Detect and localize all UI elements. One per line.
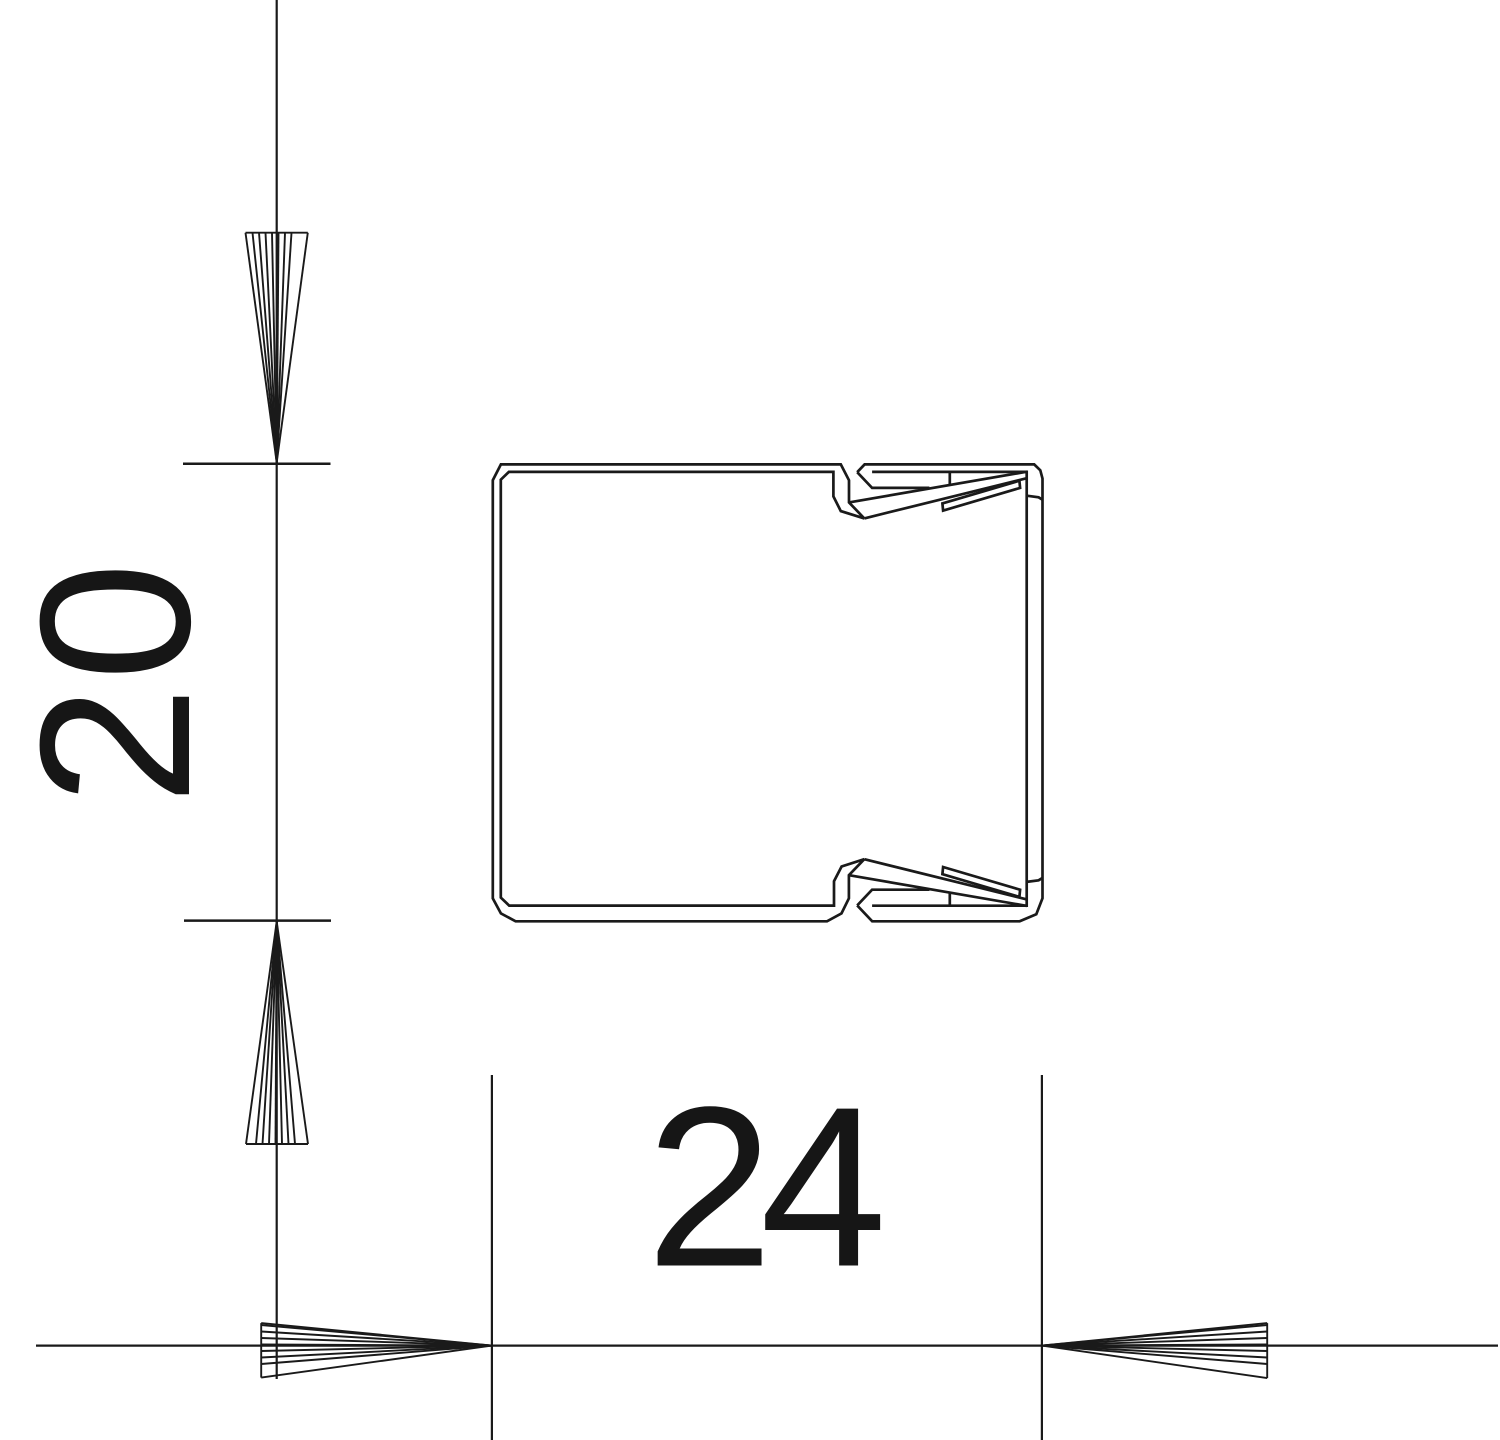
svg-text:20: 20: [0, 557, 235, 805]
svg-text:24: 24: [646, 1061, 881, 1315]
